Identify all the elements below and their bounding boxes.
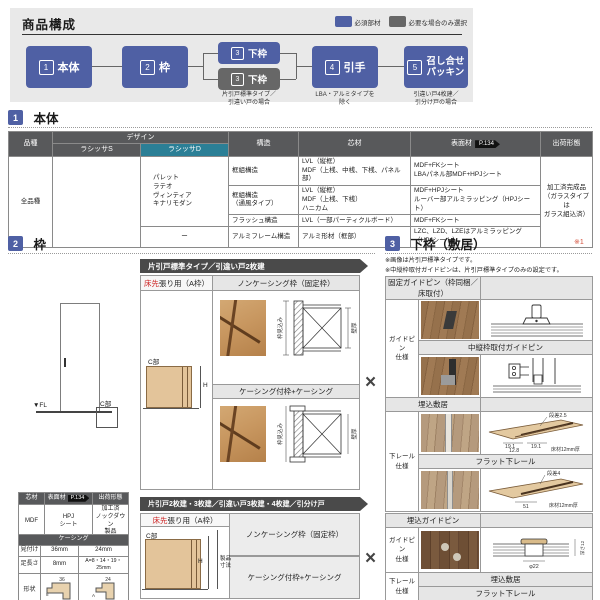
option-header: 中縦枠取付ガイドピン [419, 341, 593, 355]
dim-label-wall: 壁厚 [350, 428, 358, 440]
col-header-label: 表面材 [48, 495, 66, 501]
option-header-cont [481, 514, 593, 528]
flow-label: 枠 [159, 59, 170, 75]
col-header: 出荷形態 [541, 132, 593, 157]
flow-num: 1 [39, 60, 54, 75]
fixed-guidepin-photo [421, 301, 479, 339]
option-header: フラット下レール [419, 455, 593, 469]
dim-floor: 床材12mm厚 [549, 502, 578, 509]
lower-frame-table-2: 埋込ガイドピン ガイドピン 仕様 φ22 [385, 513, 593, 600]
note-line: ※中縦枠取付ガイドピンは、片引戸標準タイプのみの設定です。 [385, 266, 595, 276]
flow-box-packing: 5 召し合せ パッキン [404, 46, 468, 88]
section1-title: 本体 [33, 112, 58, 126]
flow-box-frame: 2 枠 [122, 46, 188, 88]
divider-line [8, 253, 375, 254]
flow-box-pull-handle: 4 引手 [312, 46, 378, 88]
dim-floor: 床材12mm厚 [551, 446, 580, 452]
dim-label-h: H [203, 382, 208, 389]
flow-label: 本体 [58, 59, 80, 75]
dim-depth: 深さ12 [579, 540, 586, 555]
legend-label: 必要な場合のみ選択 [409, 17, 468, 27]
col-header: 出荷形態 [93, 493, 129, 505]
col-header: 構造 [229, 132, 299, 157]
mid-guidepin-photo-cell [419, 355, 481, 398]
col-header-lasissa-s: ラシッサS [53, 144, 141, 156]
dim-b: 19.1 [531, 444, 541, 450]
legend-optional: 必要な場合のみ選択 [389, 16, 468, 27]
mid-guidepin-diagram [481, 355, 593, 398]
flow-connector [92, 66, 122, 67]
dim-a: 51 [523, 504, 529, 509]
dim-line [217, 530, 218, 589]
flow-connector [280, 79, 296, 80]
cell-hyomen: MDF+FKシート LBAパネル部MDF+HPJシート [411, 156, 541, 185]
col-header: デザイン [53, 132, 229, 144]
divider-line [385, 253, 592, 254]
flow-connector [378, 66, 404, 67]
door-edge-lines [182, 367, 188, 407]
cell-value: 36mm [41, 546, 79, 557]
flow-num: 3 [231, 47, 244, 60]
floor-first-rest: 張り用（A枠） [167, 515, 217, 526]
section3-heading: 3 下枠（敷居） [385, 234, 485, 253]
casing-option-cell: ケーシング付枠+ケーシング [229, 556, 360, 599]
body-spec-table: 品種 デザイン 構造 芯材 表面材P.134 出荷形態 ラシッサS ラシッサD … [8, 131, 593, 248]
casing-profile-36-drawing: 36 8 [41, 573, 79, 600]
row-label: 形状 [19, 573, 41, 600]
col-header: 表面材P.134 [411, 132, 541, 157]
floor-first-red: 床先 [152, 515, 167, 526]
option-row: フラット下レール [419, 587, 593, 600]
cell-value: A=8・14・19・25mm [79, 557, 129, 574]
photo-frame-line [220, 312, 261, 344]
door-handle-mark [64, 358, 66, 367]
row-group-label-guidepin: ガイドピン 仕様 [386, 528, 419, 573]
fixed-guidepin-photo-cell [419, 300, 481, 341]
sunken-sill-photo [421, 414, 479, 452]
col-header-lasissa-d: ラシッサD [141, 144, 229, 156]
note-line: ※画像は片引戸標準タイプです。 [385, 256, 595, 266]
dim-label: 36 [59, 577, 65, 583]
c-detail-box [96, 407, 118, 428]
page-ref-badge: P.134 [475, 140, 500, 148]
cell-shinzai: LVL（縦框） MDF（上桟、中桟、下桟、パネル部） [299, 156, 411, 185]
legend: 必須部材 必要な場合のみ選択 [335, 16, 468, 27]
cell-shinzai: LVL（縦框） MDF（上桟、下桟） ハニカム [299, 186, 411, 215]
photo-frame-line [220, 418, 261, 450]
flow-caption: 引違い戸4枚建／ 引分け戸の場合 [391, 92, 481, 108]
col-header-label: 表面材 [451, 140, 472, 147]
legend-swatch-gray [389, 16, 406, 27]
frame-material-table: 芯材 表面材P.134 出荷形態 MDF HPJ シート 加工済 ノックダウン … [18, 492, 129, 539]
cell-shukka: 加工済完成品 （ガラスタイプは ガラス組込済） [541, 156, 593, 247]
flow-num: 5 [407, 60, 422, 75]
floor-first-header: 床先張り用（A枠） [140, 513, 230, 527]
sunken-sill-photo-cell [419, 412, 481, 455]
flow-box-lower-frame-optional: 3 下枠 [218, 68, 280, 90]
dim-line [200, 366, 201, 408]
divider-line [8, 127, 592, 128]
flow-label: 下枠 [248, 46, 267, 60]
dim-label: 24 [105, 577, 111, 583]
cell-shinzai: LVL（一部パーティクルボード） [299, 215, 411, 227]
section3-title: 下枠（敷居） [410, 238, 485, 252]
dim-label-product-size: 製品 寸法 [220, 556, 231, 569]
section3-notes: ※画像は片引戸標準タイプです。 ※中縦枠取付ガイドピンは、片引戸標準タイプのみの… [385, 256, 595, 275]
noncasing-frame-photo [220, 300, 266, 356]
pin-dot [453, 553, 461, 561]
dim-label: A [92, 593, 95, 598]
flow-caption: LBA・アルミタイプを 除く [300, 92, 390, 108]
catalog-page: 商品構成 必須部材 必要な場合のみ選択 1 本体 2 枠 3 下枠 3 [0, 0, 600, 600]
legend-label: 必須部材 [355, 17, 381, 27]
casing-profile-24-drawing: 24 A [79, 573, 129, 600]
cell-design-d-last: ー [141, 227, 229, 248]
banner-standard-type: 片引戸標準タイプ／引違い戸2枚建 [140, 259, 368, 273]
option-header: 埋込ガイドピン [386, 514, 481, 528]
flow-connector [296, 66, 312, 67]
flow-caption: 片引戸標準タイプ／ 引違い戸の場合 [204, 92, 294, 108]
incompatible-mark: × [365, 372, 376, 394]
product-composition-panel: 商品構成 必須部材 必要な場合のみ選択 1 本体 2 枠 3 下枠 3 [10, 8, 473, 102]
baseline [143, 408, 199, 409]
flat-rail-photo-cell [419, 469, 481, 512]
section1-number: 1 [8, 110, 23, 125]
door-elevation-drawing [60, 303, 100, 412]
col-header: 芯材 [299, 132, 411, 157]
bracket-shape [441, 375, 455, 385]
cell-kozo: フラッシュ構造 [229, 215, 299, 227]
cell-hyomen: MDF+HPJシート ルーバー部アルミラッピング（HPJシート） [411, 186, 541, 215]
dim-step: 段差2.5 [549, 412, 567, 419]
dim-line [208, 536, 209, 589]
incompatible-mark: × [365, 548, 376, 570]
flat-rail-diagram: 段差4 51 床材12mm厚 [481, 469, 593, 512]
option-header-cont [481, 398, 593, 412]
flow-label: 下枠 [248, 72, 267, 86]
dim-label-frame-depth: 枠見込み [276, 317, 284, 340]
row-group-label-guidepin: ガイドピン 仕様 [386, 300, 419, 398]
flow-label: 引手 [344, 59, 366, 75]
divider-line [212, 275, 213, 490]
buried-guidepin-photo [421, 531, 479, 569]
flow-box-body: 1 本体 [26, 46, 92, 88]
banner-multi-panel: 片引戸2枚建・3枚建／引違い戸3枚建・4枚建／引分け戸 [140, 497, 368, 511]
legend-required: 必須部材 [335, 16, 381, 27]
col-header: 芯材 [19, 493, 45, 505]
dim-c: 12.8 [509, 448, 519, 452]
section2-number: 2 [8, 236, 23, 251]
flow-connector [203, 53, 204, 79]
baseline [142, 589, 208, 590]
casing-frame-photo [220, 406, 266, 462]
cell-kozo: 框組構造 [229, 156, 299, 185]
dim-label-wall: 壁厚 [350, 322, 358, 334]
c-detail-label: C部 [148, 356, 159, 366]
fixed-guidepin-diagram [481, 300, 593, 341]
page-title: 商品構成 [22, 14, 76, 33]
c-detail-drawing [146, 366, 192, 408]
table-title: ケーシング [19, 535, 129, 546]
cell-value: 8mm [41, 557, 79, 574]
rail-strip [445, 414, 452, 452]
cell-kozo: アルミフレーム構造 [229, 227, 299, 248]
flow-label: 召し合せ パッキン [426, 56, 464, 79]
option-row: 埋込敷居 [419, 573, 593, 587]
legend-swatch-blue [335, 16, 352, 27]
noncasing-option-cell: ノンケーシング枠（固定枠） [229, 513, 360, 556]
buried-guidepin-photo-cell [419, 528, 481, 573]
row-label: 足長さ [19, 557, 41, 574]
option-header: 固定ガイドピン（枠同梱／床取付） [386, 277, 481, 300]
floor-first-header: 床先張り用（A枠） [140, 275, 213, 291]
flow-num: 2 [140, 60, 155, 75]
guidepin-shape [443, 311, 457, 329]
flow-connector [188, 66, 203, 67]
section3-number: 3 [385, 236, 400, 251]
option-header: 埋込敷居 [386, 398, 481, 412]
footnote-ref: ※1 [574, 238, 584, 246]
divider-line [22, 34, 462, 35]
buried-guidepin-diagram: φ22 深さ12 [481, 528, 593, 573]
section2-title: 枠 [33, 238, 46, 252]
door-edge-lines [191, 540, 197, 588]
noncasing-section-diagram: 枠見込み 壁厚 [274, 296, 358, 367]
lower-frame-table-1: 固定ガイドピン（枠同梱／床取付） ガイドピン 仕様 [385, 276, 593, 512]
cell-design-s [53, 156, 141, 247]
sunken-sill-diagram: 段差2.5 19.1 19.1 12.8 床材12mm厚 [481, 412, 593, 455]
flow-connector [280, 53, 296, 54]
casing-frame-header: ケーシング付枠+ケーシング [212, 384, 360, 399]
cell-design-d: パレット ラテオ ヴィンティア キナリモダン [141, 156, 229, 227]
cell-kozo: 框組構造 （通風タイプ） [229, 186, 299, 215]
dim-step: 段差4 [547, 469, 560, 477]
flow-connector [203, 79, 218, 80]
flow-num: 4 [325, 60, 340, 75]
c-detail-drawing [145, 539, 201, 589]
rail-strip [447, 471, 453, 509]
floor-first-red: 床先 [144, 278, 159, 289]
dim-label-frame-depth: 枠見込み [276, 423, 284, 446]
dim-diameter: φ22 [529, 564, 539, 570]
row-label: 見付け [19, 546, 41, 557]
col-header: 品種 [9, 132, 53, 157]
pin-dot [441, 543, 449, 551]
col-header: 表面材P.134 [45, 493, 93, 505]
floor-first-rest: 張り用（A枠） [159, 278, 209, 289]
flow-box-lower-frame-required: 3 下枠 [218, 42, 280, 64]
casing-table: ケーシング 見付け 36mm 24mm 足長さ 8mm A=8・14・19・25… [18, 534, 129, 600]
mid-guidepin-photo [421, 357, 479, 395]
floor-level-label: ▼FL [33, 402, 47, 409]
cell-hyomen: MDF+FKシート [411, 215, 541, 227]
option-header-cont [481, 277, 593, 300]
casing-section-diagram: 枠見込み 壁厚 [274, 402, 358, 473]
section1-heading: 1 本体 [8, 108, 58, 127]
cell-value: 24mm [79, 546, 129, 557]
flow-connector [203, 53, 218, 54]
flat-rail-photo [421, 471, 479, 509]
dim-label-h: H [198, 558, 203, 565]
section2-heading: 2 枠 [8, 234, 46, 253]
row-group-label-rail: 下レール 仕様 [386, 412, 419, 512]
flow-num: 3 [231, 73, 244, 86]
page-ref-badge: P.134 [68, 495, 90, 502]
row-group-label-rail: 下レール 仕様 [386, 573, 419, 600]
noncasing-header: ノンケーシング枠（固定枠） [212, 275, 360, 291]
